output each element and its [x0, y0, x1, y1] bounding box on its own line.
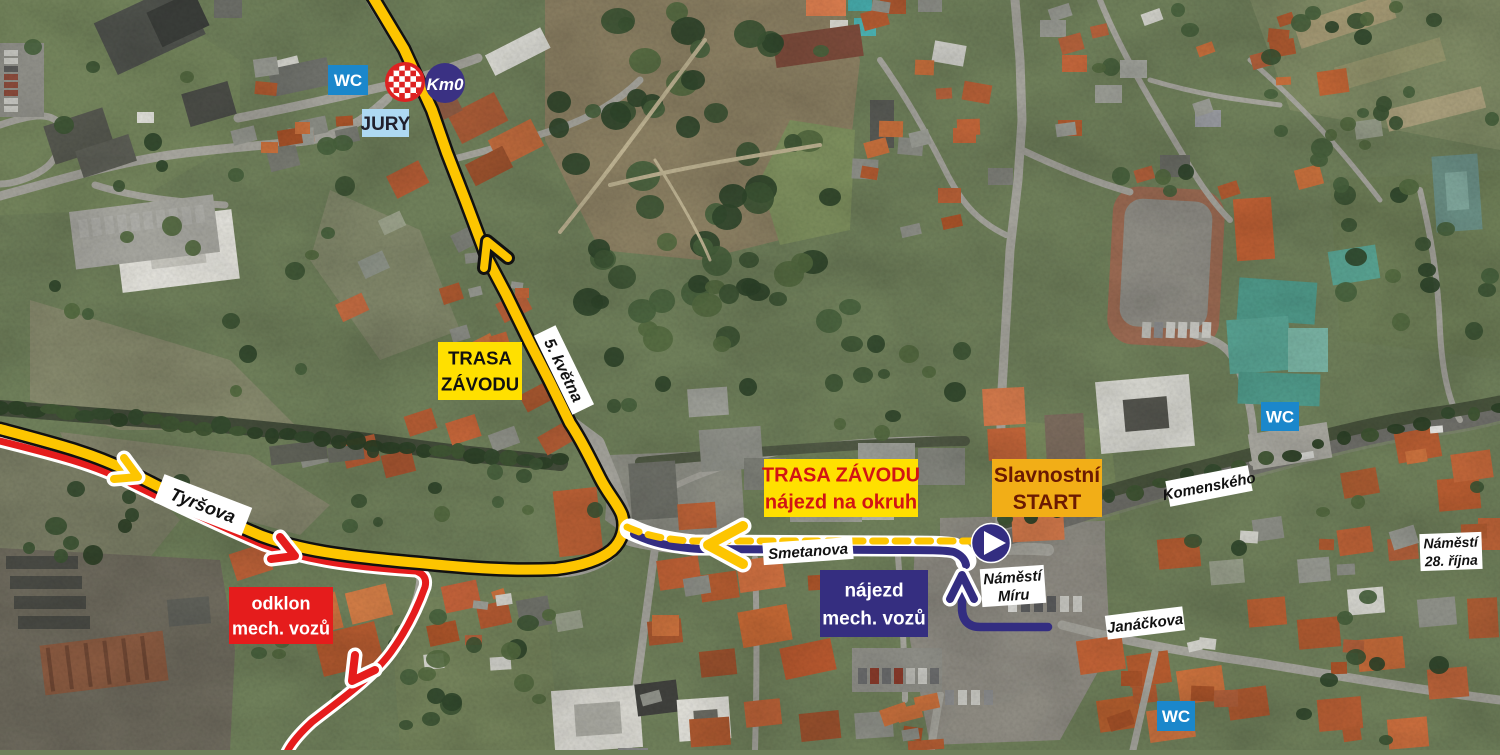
svg-text:WC: WC [1266, 408, 1294, 427]
svg-text:WC: WC [334, 71, 362, 90]
svg-text:nájezd na okruh: nájezd na okruh [765, 492, 917, 514]
svg-text:28. října: 28. října [1424, 552, 1479, 570]
svg-text:Km0: Km0 [427, 75, 464, 94]
svg-text:Slavnostní: Slavnostní [994, 464, 1101, 487]
svg-text:TRASA: TRASA [448, 348, 512, 369]
svg-text:START: START [1013, 491, 1082, 514]
svg-text:ZÁVODU: ZÁVODU [441, 374, 519, 395]
svg-text:mech. vozů: mech. vozů [232, 619, 330, 639]
svg-text:odklon: odklon [252, 594, 311, 614]
svg-text:nájezd: nájezd [844, 580, 903, 601]
svg-text:mech. vozů: mech. vozů [822, 608, 925, 629]
svg-text:JURY: JURY [361, 114, 411, 135]
svg-text:WC: WC [1162, 707, 1190, 726]
svg-text:Míru: Míru [997, 586, 1030, 605]
svg-text:TRASA ZÁVODU: TRASA ZÁVODU [762, 464, 920, 487]
svg-text:Náměstí: Náměstí [1423, 533, 1480, 551]
